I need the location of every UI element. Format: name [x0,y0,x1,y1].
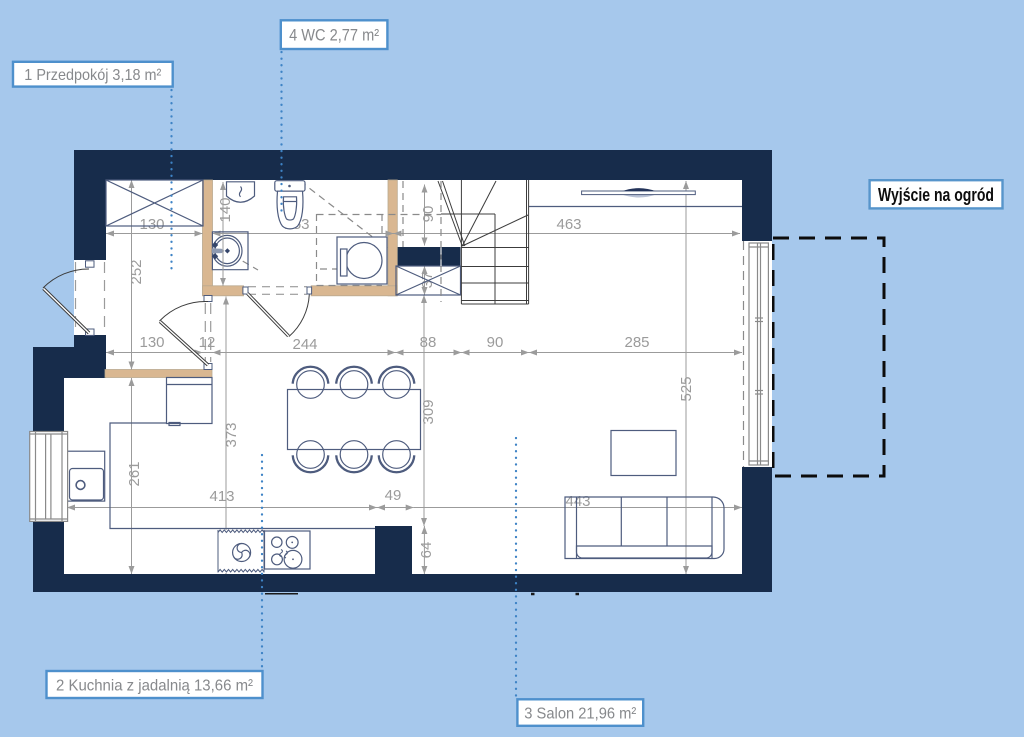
svg-text:88: 88 [420,334,437,351]
svg-text:12: 12 [199,334,216,351]
svg-text:285: 285 [624,334,649,351]
svg-text:90: 90 [487,334,504,351]
svg-text:413: 413 [209,488,234,505]
svg-text:4 WC 2,77 m²: 4 WC 2,77 m² [289,27,379,45]
svg-text:309: 309 [420,399,437,424]
svg-text:525: 525 [678,376,695,401]
svg-text:1 Przedpokój 3,18 m²: 1 Przedpokój 3,18 m² [24,67,162,84]
svg-text:443: 443 [565,493,590,510]
svg-text:244: 244 [292,336,317,353]
svg-text:130: 130 [139,334,164,351]
svg-text:130: 130 [139,216,164,233]
svg-text:373: 373 [223,422,240,447]
svg-text:64: 64 [418,542,435,559]
svg-text:3 Salon 21,96 m²: 3 Salon 21,96 m² [524,705,637,722]
svg-text:261: 261 [126,461,143,486]
svg-text:49: 49 [385,487,402,504]
svg-text:Wyjście na ogród: Wyjście na ogród [878,185,994,205]
svg-text:140: 140 [217,197,234,222]
svg-text:252: 252 [128,259,145,284]
svg-text:2 Kuchnia z jadalnią 13,66 m²: 2 Kuchnia z jadalnią 13,66 m² [56,677,254,694]
svg-text:463: 463 [556,216,581,233]
